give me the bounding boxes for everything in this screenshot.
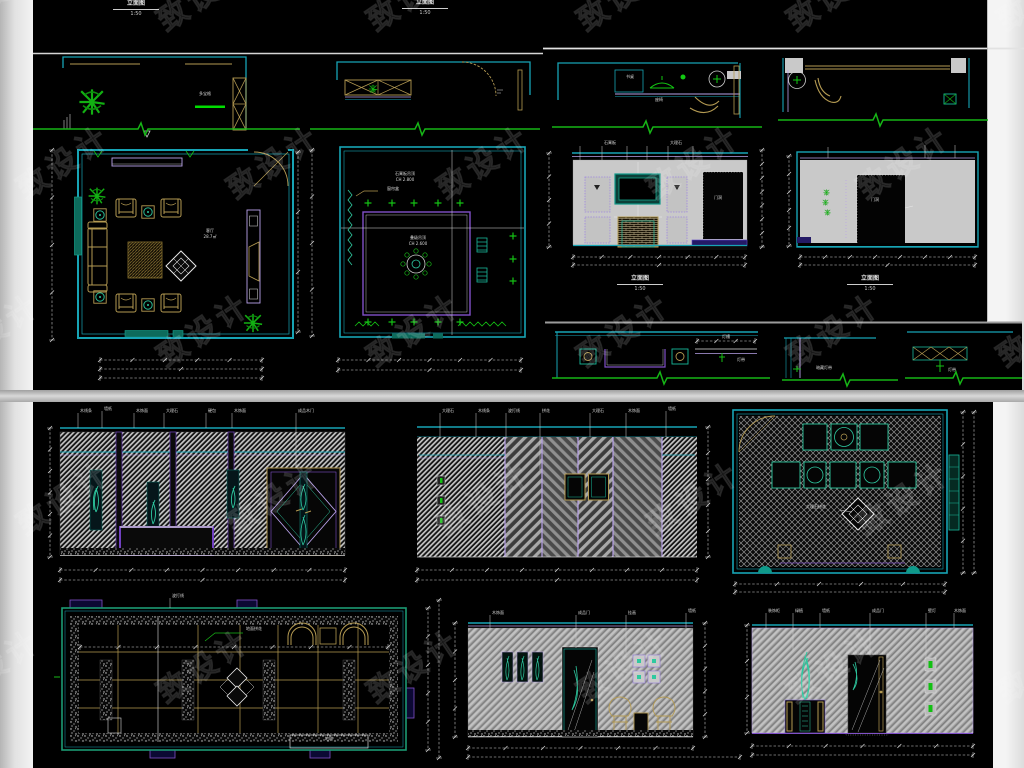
tv-wall-elevation xyxy=(572,153,748,250)
dining-wall-elevation xyxy=(468,623,693,737)
feature-wall-elevation xyxy=(417,427,697,557)
cad-linework xyxy=(0,0,1024,768)
cad-preview-canvas: 立面图 1:50 立面图 1:50 立面图 1:50 立面图 1:50 多宝格书… xyxy=(0,0,1024,768)
hall-elevation xyxy=(797,152,978,247)
tea-room-plan xyxy=(733,410,959,573)
entry-wall-elevation xyxy=(60,428,345,556)
corridor-wall-elevation xyxy=(752,625,973,735)
